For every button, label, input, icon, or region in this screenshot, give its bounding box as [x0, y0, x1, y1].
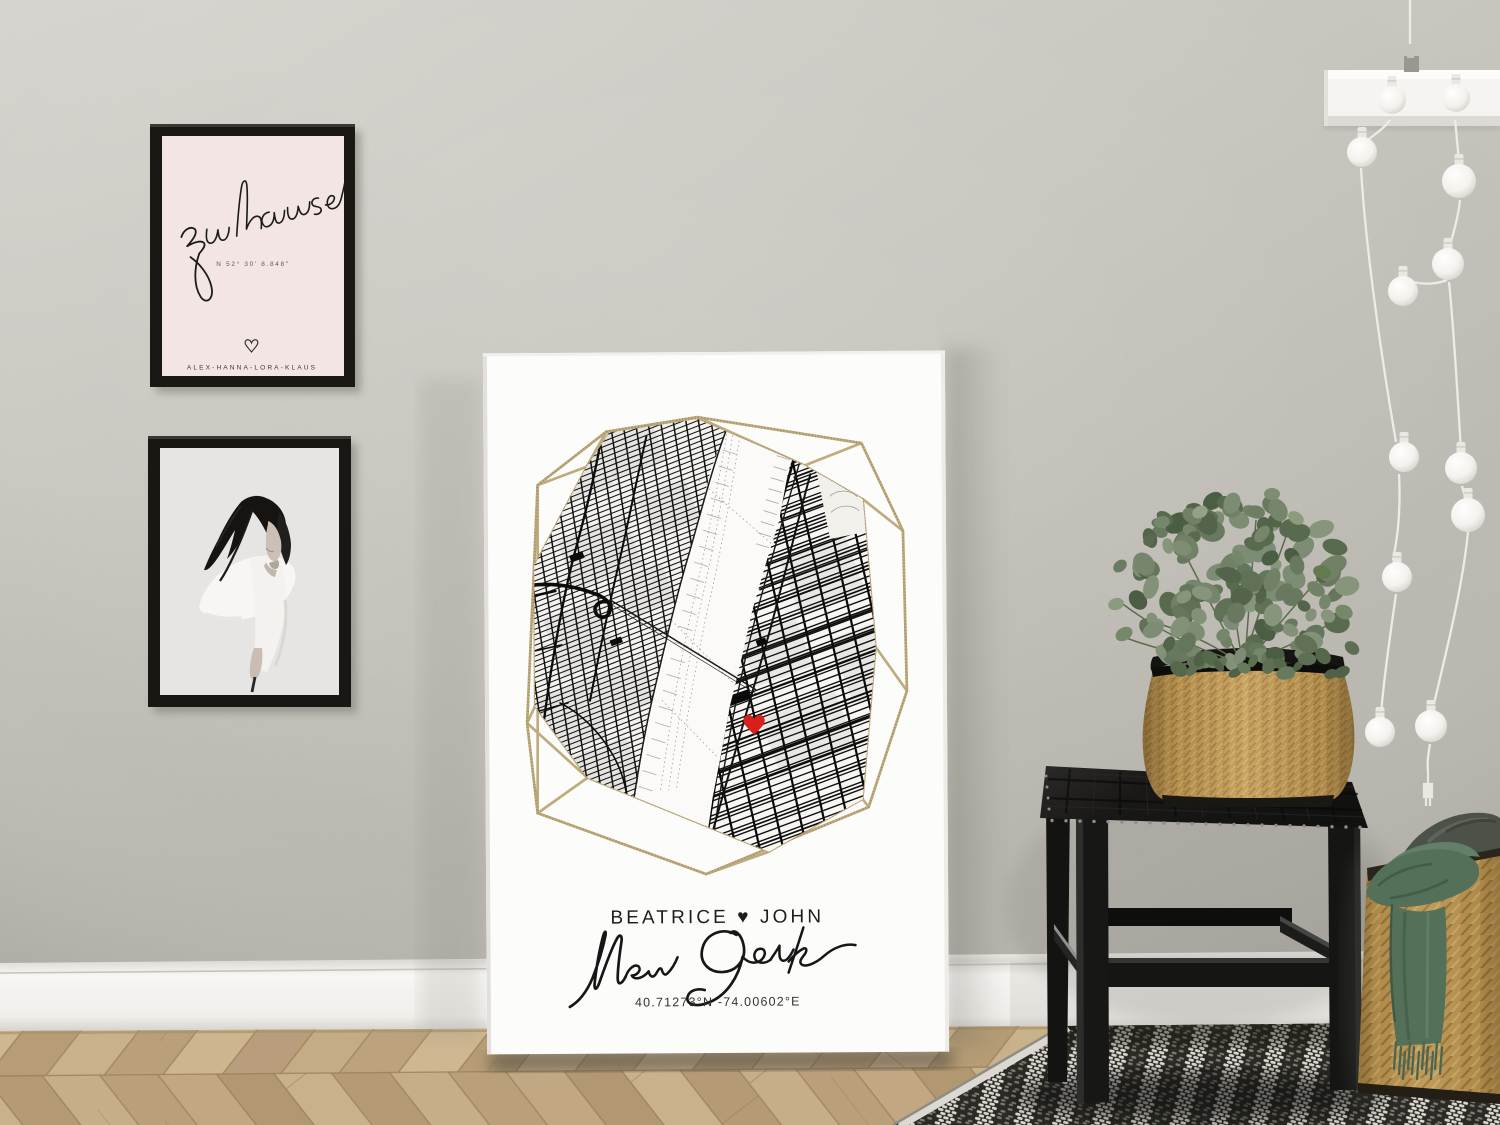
svg-text:ALEX-HANNA-LORA-KLAUS: ALEX-HANNA-LORA-KLAUS	[187, 365, 317, 372]
svg-text:N 52° 30' 8.848": N 52° 30' 8.848"	[216, 260, 289, 268]
svg-text:BEATRICE ♥ JOHN: BEATRICE ♥ JOHN	[610, 906, 824, 928]
svg-text:40.71273°N -74.00602°E: 40.71273°N -74.00602°E	[635, 994, 801, 1009]
